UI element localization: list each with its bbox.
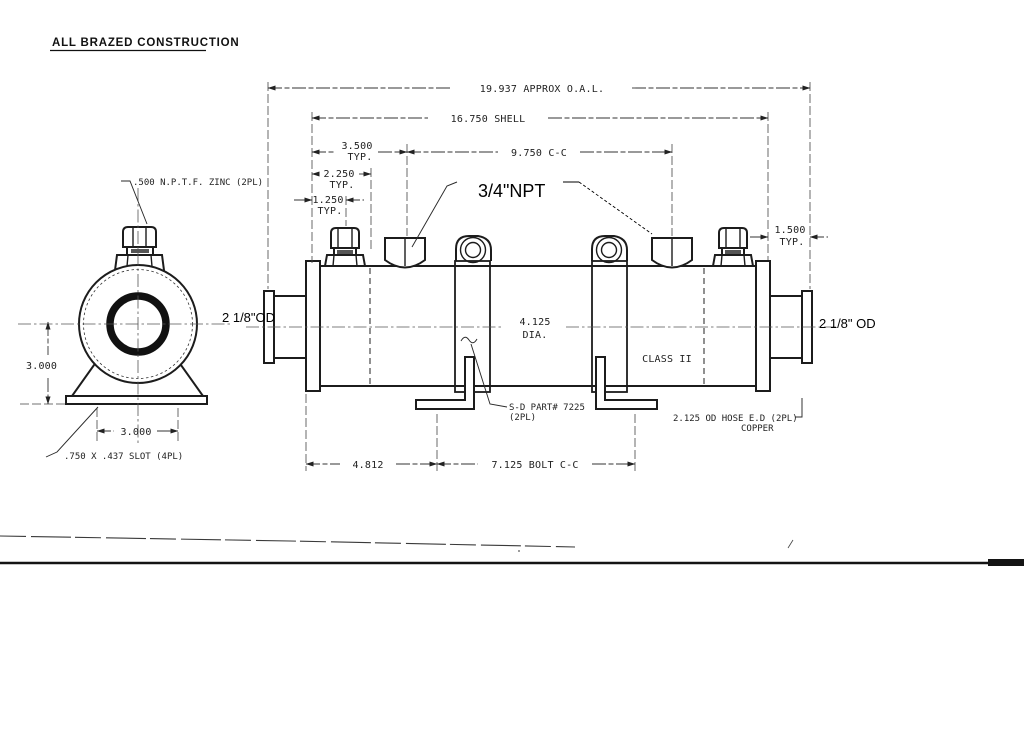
side-view: 4.125 DIA. CLASS II (246, 228, 836, 409)
svg-text:TYP.: TYP. (318, 206, 343, 217)
right-end-cap (756, 261, 770, 391)
part-note-line2: (2PL) (509, 413, 536, 423)
svg-text:3.000: 3.000 (120, 427, 151, 438)
svg-text:1.250: 1.250 (312, 195, 343, 206)
dim-3500: 3.500 TYP. (312, 141, 407, 163)
svg-text:3.000: 3.000 (26, 361, 57, 372)
end-view-foot-plate (66, 396, 207, 404)
dim-slot-cc: 3.000 (97, 408, 178, 442)
scan-speck-dot (518, 550, 520, 552)
npt-leader-right-d (579, 182, 652, 234)
svg-text:TYP.: TYP. (348, 152, 373, 163)
scan-blob (988, 559, 1024, 566)
scan-speck-slash (788, 540, 793, 548)
heat-exchanger-drawing: ALL BRAZED CONSTRUCTION .500 N.P.T.F. ZI… (0, 0, 1024, 745)
scan-border-partial (0, 536, 575, 547)
svg-text:9.750 C-C: 9.750 C-C (511, 148, 567, 159)
dim-bolt-cc: 7.125 BOLT C-C (437, 460, 635, 471)
annotation-od-right: 2 1/8" OD (819, 316, 876, 331)
npt-boss-right (652, 238, 692, 268)
svg-text:4.812: 4.812 (352, 460, 383, 471)
svg-text:TYP.: TYP. (780, 237, 805, 248)
hose-note-line2: COPPER (741, 424, 774, 434)
dim-1500: 1.500 TYP. (750, 225, 828, 248)
zinc-note: .500 N.P.T.F. ZINC (2PL) (133, 178, 263, 188)
drawing-title: ALL BRAZED CONSTRUCTION (52, 37, 240, 49)
side-zinc-plug-right (713, 228, 753, 266)
hose-note-line1: 2.125 OD HOSE E.D (2PL) (673, 414, 798, 424)
left-end-cap (306, 261, 320, 391)
dim-dia-suffix: DIA. (523, 330, 548, 341)
slot-note: .750 X .437 SLOT (4PL) (64, 452, 183, 462)
annotation-npt: 3/4"NPT (478, 181, 545, 201)
part-note-line1: S-D PART# 7225 (509, 403, 585, 413)
blueprint-page: ALL BRAZED CONSTRUCTION .500 N.P.T.F. ZI… (0, 0, 1024, 745)
drawing-title-block: ALL BRAZED CONSTRUCTION (50, 37, 240, 51)
side-zinc-plug-left (325, 228, 365, 266)
svg-text:16.750 SHELL: 16.750 SHELL (451, 114, 526, 125)
annotation-od-left: 2 1/8"OD (222, 310, 275, 325)
dim-4812: 4.812 (306, 460, 437, 471)
dim-end-height: 3.000 (20, 322, 66, 404)
svg-text:2.250: 2.250 (323, 169, 354, 180)
dim-dia-value: 4.125 (519, 317, 550, 328)
dim-port-cc: 9.750 C-C (407, 148, 672, 159)
dim-shell: 16.750 SHELL (312, 114, 768, 125)
dim-1250: 1.250 TYP. (294, 195, 364, 217)
svg-text:3.500: 3.500 (341, 141, 372, 152)
scan-artifacts (0, 536, 1024, 566)
svg-text:19.937 APPROX O.A.L.: 19.937 APPROX O.A.L. (480, 84, 604, 95)
slot-note-leader (46, 407, 98, 457)
svg-text:TYP.: TYP. (330, 180, 355, 191)
dim-2250: 2.250 TYP. (312, 169, 371, 191)
class-rating-label: CLASS II (642, 354, 692, 365)
svg-text:1.500: 1.500 (774, 225, 805, 236)
npt-boss-left (385, 238, 425, 268)
dim-oal: 19.937 APPROX O.A.L. (268, 84, 810, 95)
svg-text:7.125 BOLT C-C: 7.125 BOLT C-C (491, 460, 578, 471)
